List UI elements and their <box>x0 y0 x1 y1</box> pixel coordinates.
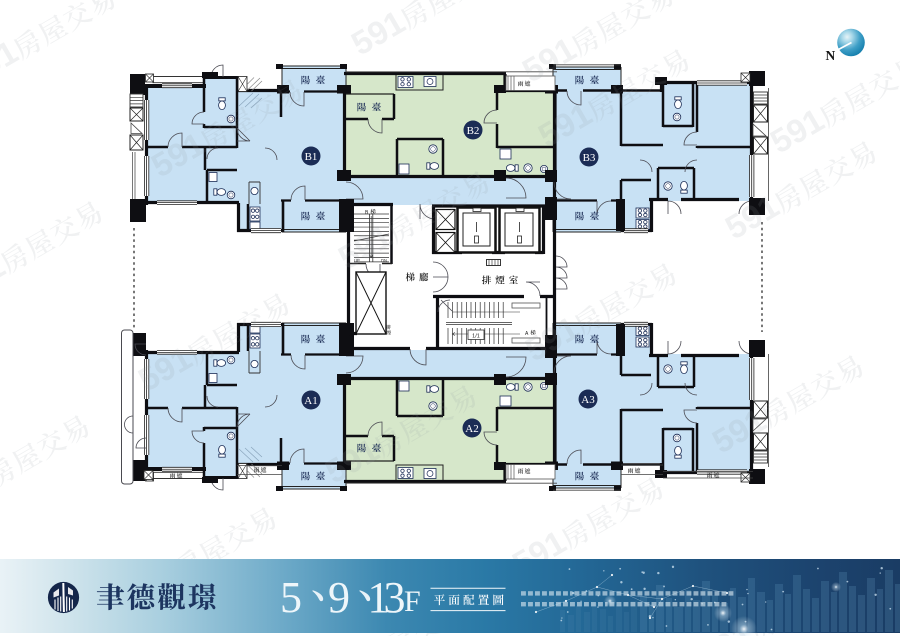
svg-text:DN: DN <box>381 258 387 263</box>
svg-text:B1: B1 <box>305 151 318 163</box>
svg-text:A3: A3 <box>581 394 595 406</box>
svg-text:B3: B3 <box>583 152 596 164</box>
svg-text:F: F <box>404 585 421 618</box>
svg-text:A2: A2 <box>465 423 478 435</box>
svg-text:5913: 5913 <box>280 573 406 622</box>
svg-text:B2: B2 <box>467 125 480 137</box>
svg-text:1/1: 1/1 <box>472 334 480 340</box>
svg-text:N: N <box>826 48 836 63</box>
svg-text:A1: A1 <box>304 395 317 407</box>
